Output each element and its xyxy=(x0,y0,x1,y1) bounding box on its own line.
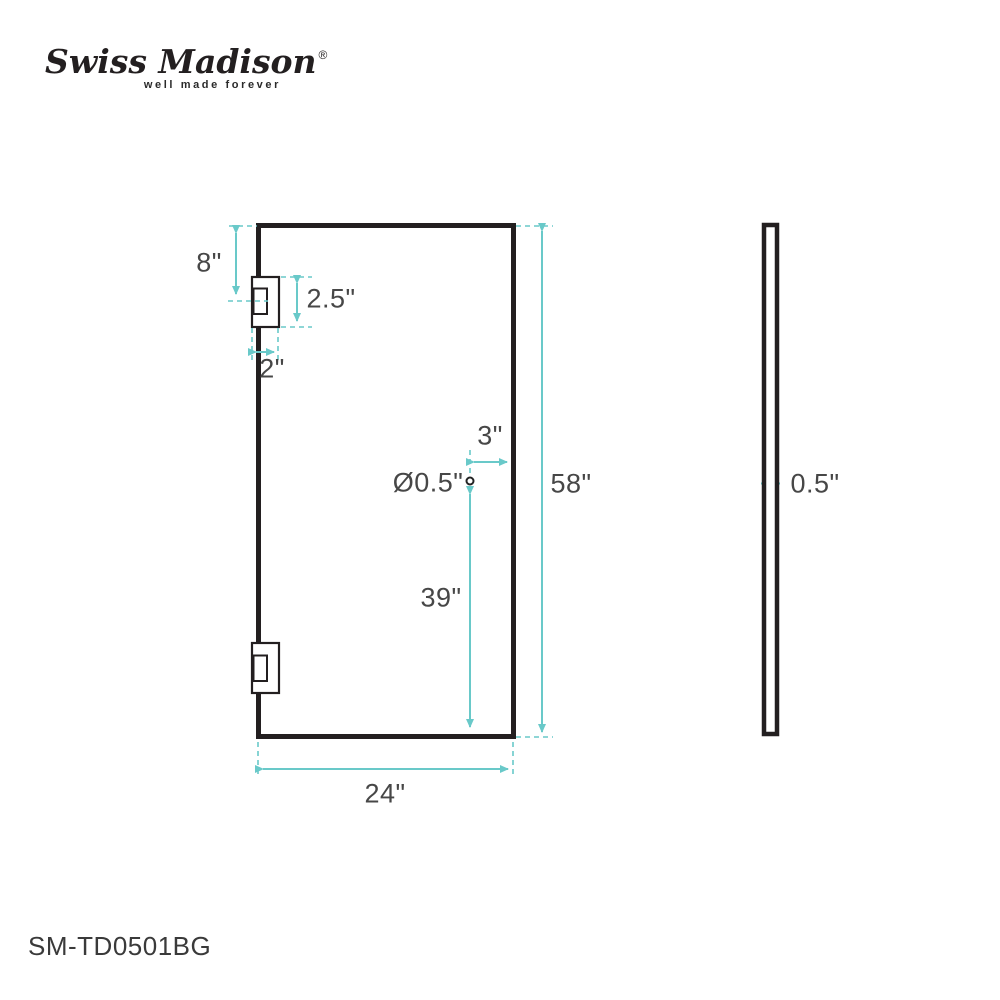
dim-label-hinge-width: 2" xyxy=(259,354,285,385)
dim-label-hole-edge-offset: 3" xyxy=(477,421,503,452)
spec-sheet: Swiss Madison® well made forever xyxy=(0,0,1000,1000)
hinge-bottom xyxy=(252,643,279,693)
dim-label-hinge-height: 2.5" xyxy=(306,284,355,315)
side-view-panel xyxy=(764,225,777,734)
dim-label-door-height: 58" xyxy=(550,469,591,500)
technical-drawing xyxy=(0,0,1000,1000)
part-number: SM-TD0501BG xyxy=(28,931,211,962)
hinge-top xyxy=(252,277,279,327)
dim-label-hole-diameter: Ø0.5" xyxy=(393,468,464,499)
dim-label-thickness: 0.5" xyxy=(790,469,839,500)
handle-hole xyxy=(467,478,474,485)
dim-label-hole-bottom-offset: 39" xyxy=(420,583,461,614)
dim-label-hinge-top-offset: 8" xyxy=(196,248,222,279)
dim-label-door-width: 24" xyxy=(364,779,405,810)
